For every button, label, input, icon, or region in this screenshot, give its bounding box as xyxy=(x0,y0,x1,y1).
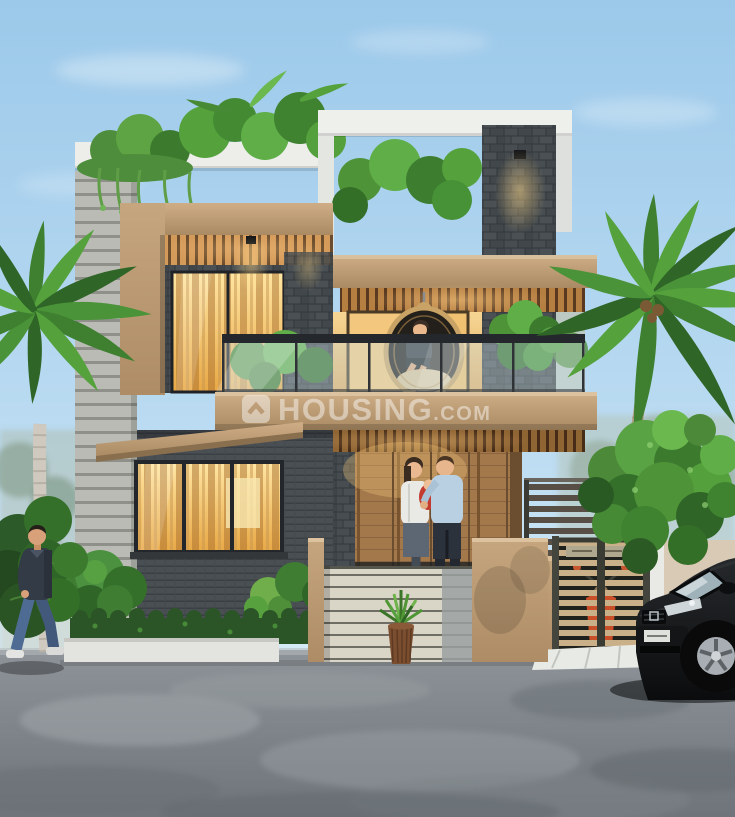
tan-pillar xyxy=(120,203,165,395)
asphalt-road xyxy=(0,648,735,817)
watermark-suffix: .COM xyxy=(433,403,491,425)
ground-window xyxy=(130,462,288,559)
watermark-brand: HOUSING xyxy=(278,392,433,427)
balcony-roof xyxy=(333,255,597,316)
housing-logo-house-icon xyxy=(242,395,270,423)
glass-railing xyxy=(216,334,585,393)
render-canvas: HOUSING.COM xyxy=(0,0,735,817)
